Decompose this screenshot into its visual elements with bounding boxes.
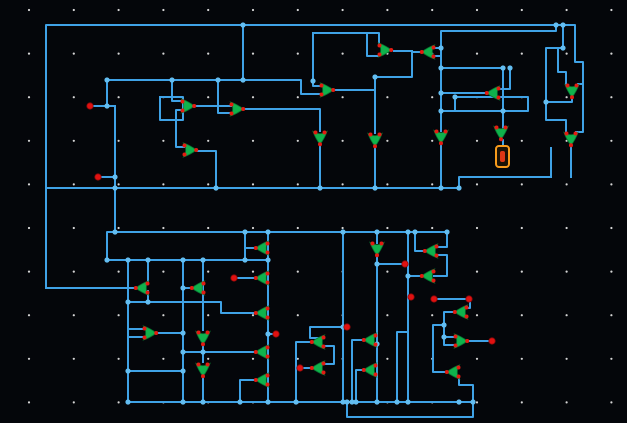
gate-pin[interactable] [435,254,439,258]
wire-junction[interactable] [180,399,185,404]
gate-pin[interactable] [371,242,375,246]
wire-junction[interactable] [507,65,512,70]
wire-junction[interactable] [237,399,242,404]
grid-dot [610,9,612,11]
grid-dot [297,227,299,229]
gate-pin[interactable] [454,344,458,348]
wire-junction[interactable] [200,257,205,262]
grid-dot [386,314,388,316]
gate-pin[interactable] [465,315,469,319]
grid-dot [162,53,164,55]
wire-junction[interactable] [553,22,558,27]
io-terminal[interactable] [297,365,303,371]
gate-pin[interactable] [146,291,150,295]
grid-dot [521,227,523,229]
gate-pin[interactable] [362,338,366,342]
gate-pin[interactable] [504,126,508,130]
circuit-schematic [0,0,627,423]
grid-dot [162,183,164,185]
grid-dot [476,358,478,360]
grid-dot [118,183,120,185]
grid-dot [431,96,433,98]
gate-pin[interactable] [575,84,579,88]
grid-dot [252,9,254,11]
grid-dot [431,314,433,316]
wire-junction[interactable] [441,322,446,327]
gate-pin[interactable] [374,343,378,347]
grid-dot [566,271,568,273]
gate-pin[interactable] [206,363,210,367]
wire-junction[interactable] [500,108,505,113]
grid-dot [431,183,433,185]
gate-pin[interactable] [389,48,393,52]
grid-dot [162,314,164,316]
wire-junction[interactable] [112,174,117,179]
wire-junction[interactable] [242,257,247,262]
grid-dot [207,271,209,273]
wire-junction[interactable] [180,368,185,373]
gate-pin[interactable] [143,327,147,331]
grid-dot [521,53,523,55]
grid-dot [386,96,388,98]
grid-dot [521,401,523,403]
wire-junction[interactable] [438,45,443,50]
wire-junction[interactable] [104,257,109,262]
gate-pin[interactable] [444,130,448,134]
wire-junction[interactable] [374,229,379,234]
gate-pin[interactable] [439,141,443,145]
grid-dot [28,183,30,185]
grid-dot [162,358,164,360]
wire-junction[interactable] [145,257,150,262]
wire-junction[interactable] [125,368,130,373]
io-terminal[interactable] [466,296,472,302]
grid-dot [207,53,209,55]
gate-pin[interactable] [230,112,234,116]
gate-pin[interactable] [569,143,573,147]
gate-pin[interactable] [183,153,187,157]
gate-pin[interactable] [202,291,206,295]
gate-pin[interactable] [266,281,270,285]
wire-junction[interactable] [265,229,270,234]
grid-dot [207,140,209,142]
grid-dot [118,401,120,403]
gate-pin[interactable] [322,345,326,349]
gate-pin[interactable] [266,383,270,387]
grid-dot [610,96,612,98]
wire-junction[interactable] [438,90,443,95]
grid-dot [610,227,612,229]
grid-dot [207,227,209,229]
wire-junction[interactable] [374,261,379,266]
grid-dot [252,358,254,360]
gate-pin[interactable] [362,368,366,372]
gate-pin[interactable] [369,133,373,137]
grid-dot [28,227,30,229]
wire-junction[interactable] [372,185,377,190]
grid-dot [73,96,75,98]
wire-junction[interactable] [543,99,548,104]
gate-pin[interactable] [266,316,270,320]
grid-dot [118,271,120,273]
gate-pin[interactable] [241,107,245,111]
grid-dot [610,271,612,273]
gate-pin[interactable] [318,142,322,146]
grid-dot [73,140,75,142]
wire-junction[interactable] [456,185,461,190]
gate-pin[interactable] [432,270,436,274]
grid-dot [476,9,478,11]
grid-dot [28,271,30,273]
grid-dot [386,183,388,185]
wire-junction[interactable] [169,77,174,82]
grid-dot [386,9,388,11]
grid-dot [118,314,120,316]
grid-dot [118,53,120,55]
wire-junction[interactable] [215,77,220,82]
gate-pin[interactable] [266,346,270,350]
grid-dot [207,183,209,185]
grid-dot [610,183,612,185]
gate-pin[interactable] [254,378,258,382]
wire-junction[interactable] [560,22,565,27]
gate-pin[interactable] [374,373,378,377]
gate-pin[interactable] [146,282,150,286]
wire-junction[interactable] [125,399,130,404]
gate-pin[interactable] [497,87,501,91]
grid-dot [73,358,75,360]
grid-dot [476,401,478,403]
grid-dot [73,9,75,11]
gate-pin[interactable] [266,307,270,311]
gate-pin[interactable] [499,137,503,141]
grid-dot [28,53,30,55]
wire-junction[interactable] [180,349,185,354]
grid-dot [566,314,568,316]
gate-pin[interactable] [323,131,327,135]
grid-dot [476,53,478,55]
grid-dot [28,96,30,98]
gate-pin[interactable] [134,286,138,290]
gate-pin[interactable] [432,279,436,283]
grid-dot [431,140,433,142]
gate-pin[interactable] [432,46,436,50]
io-terminal[interactable] [489,338,495,344]
gate-pin[interactable] [497,96,501,100]
grid-dot [566,53,568,55]
gate-pin[interactable] [266,272,270,276]
gate-pin[interactable] [375,253,379,257]
grid-dot [297,314,299,316]
grid-dot [207,96,209,98]
wire-junction[interactable] [265,399,270,404]
wire-junction[interactable] [372,74,377,79]
wire-junction[interactable] [242,229,247,234]
grid-dot [476,140,478,142]
gate-pin[interactable] [143,336,147,340]
grid-dot [297,183,299,185]
wire-junction[interactable] [125,299,130,304]
gate-pin[interactable] [190,286,194,290]
wire-junction[interactable] [317,185,322,190]
wire-junction[interactable] [310,78,315,83]
wire-junction[interactable] [240,22,245,27]
wire-junction[interactable] [200,349,205,354]
wire-junction[interactable] [405,229,410,234]
wire-junction[interactable] [213,185,218,190]
grid-dot [73,183,75,185]
wire-junction[interactable] [112,185,117,190]
gate-pin[interactable] [192,104,196,108]
gate-pin[interactable] [266,374,270,378]
grid-dot [386,358,388,360]
grid-dot [566,96,568,98]
gate-pin[interactable] [266,251,270,255]
grid-dot [252,271,254,273]
io-terminal[interactable] [273,331,279,337]
gate-pin[interactable] [201,342,205,346]
grid-dot [28,401,30,403]
grid-dot [431,9,433,11]
gate-pin[interactable] [254,246,258,250]
grid-dot [386,140,388,142]
wire-junction[interactable] [444,229,449,234]
wire-junction[interactable] [438,108,443,113]
gate-pin[interactable] [495,126,499,130]
grid-dot [386,271,388,273]
grid-dot [342,227,344,229]
grid-dot [521,183,523,185]
grid-dot [566,401,568,403]
grid-dot [73,314,75,316]
grid-dot [521,271,523,273]
io-terminal[interactable] [431,296,437,302]
wire-junction[interactable] [180,257,185,262]
wire-junction[interactable] [470,399,475,404]
gate-pin[interactable] [465,306,469,310]
io-terminal[interactable] [95,174,101,180]
grid-dot [566,183,568,185]
gate-pin[interactable] [197,363,201,367]
grid-dot [73,271,75,273]
grid-dot [162,271,164,273]
gate-pin[interactable] [453,310,457,314]
grid-dot [610,140,612,142]
gate-pin[interactable] [435,130,439,134]
grid-dot [297,53,299,55]
grid-dot [118,358,120,360]
wire-junction[interactable] [438,185,443,190]
wire-junction[interactable] [180,330,185,335]
gate-pin[interactable] [183,144,187,148]
grid-dot [162,9,164,11]
io-terminal[interactable] [344,324,350,330]
gate-pin[interactable] [230,103,234,107]
grid-dot [297,9,299,11]
gate-pin[interactable] [420,50,424,54]
gate-pin[interactable] [380,242,384,246]
gate-pin[interactable] [322,336,326,340]
grid-dot [252,96,254,98]
gate-pin[interactable] [432,55,436,59]
wire-junction[interactable] [104,77,109,82]
gate-pin[interactable] [378,44,382,48]
grid-dot [297,140,299,142]
wire-junction[interactable] [200,399,205,404]
gate-pin[interactable] [423,249,427,253]
wire-junction[interactable] [240,77,245,82]
gate-pin[interactable] [454,335,458,339]
grid-dot [610,401,612,403]
gate-pin[interactable] [320,93,324,97]
grid-dot [28,314,30,316]
gate-pin[interactable] [445,370,449,374]
grid-dot [118,9,120,11]
gate-pin[interactable] [373,144,377,148]
gate-pin[interactable] [320,84,324,88]
grid-dot [73,401,75,403]
gate-pin[interactable] [322,362,326,366]
wire-junction[interactable] [452,94,457,99]
grid-dot [476,183,478,185]
gate-pin[interactable] [154,331,158,335]
grid-dot [566,358,568,360]
grid-dot [610,314,612,316]
wire-junction[interactable] [560,45,565,50]
wire-junction[interactable] [344,399,349,404]
gate-pin[interactable] [457,366,461,370]
grid-dot [342,183,344,185]
grid-dot [252,183,254,185]
wire-junction[interactable] [340,229,345,234]
grid-dot [521,314,523,316]
grid-dot [342,96,344,98]
gate-pin[interactable] [565,132,569,136]
wire-junction[interactable] [405,273,410,278]
gate-pin[interactable] [457,375,461,379]
gate-pin[interactable] [314,131,318,135]
grid-dot [73,227,75,229]
wire-junction[interactable] [180,285,185,290]
grid-dot [118,140,120,142]
gate-pin[interactable] [374,364,378,368]
grid-dot [252,314,254,316]
wire-junction[interactable] [374,399,379,404]
gate-pin[interactable] [266,242,270,246]
grid-dot [342,53,344,55]
grid-dot [297,271,299,273]
wire-junction[interactable] [265,331,270,336]
gate-pin[interactable] [266,355,270,359]
grid-dot [252,53,254,55]
gate-pin[interactable] [310,340,314,344]
io-terminal[interactable] [402,261,408,267]
wire-junction[interactable] [125,257,130,262]
gate-pin[interactable] [378,53,382,57]
gate-pin[interactable] [201,374,205,378]
grid-dot [28,358,30,360]
grid-dot [297,358,299,360]
wire-junction[interactable] [405,399,410,404]
grid-dot [342,9,344,11]
wire-junction[interactable] [104,103,109,108]
grid-dot [566,227,568,229]
wire-junction[interactable] [353,399,358,404]
gate-pin[interactable] [254,276,258,280]
gate-pin[interactable] [181,109,185,113]
grid-dot [476,227,478,229]
grid-dot [476,314,478,316]
gate-pin[interactable] [194,148,198,152]
grid-dot [386,227,388,229]
wire-junction[interactable] [265,257,270,262]
grid-dot [342,140,344,142]
grid-dot [252,227,254,229]
gate-pin[interactable] [254,311,258,315]
grid-dot [297,96,299,98]
grid-dot [610,53,612,55]
gate-pin[interactable] [206,331,210,335]
wire-junction[interactable] [441,334,446,339]
grid-dot [476,271,478,273]
grid-dot [207,314,209,316]
gate-pin[interactable] [197,331,201,335]
wire-junction[interactable] [145,299,150,304]
grid-dot [521,9,523,11]
gate-pin[interactable] [378,133,382,137]
gate-pin[interactable] [574,132,578,136]
gate-pin[interactable] [310,366,314,370]
schematic-editor-canvas[interactable] [0,0,627,423]
wire-junction[interactable] [293,399,298,404]
grid-dot [521,140,523,142]
gate-pin[interactable] [570,95,574,99]
grid-dot [28,140,30,142]
grid-dot [162,227,164,229]
gate-pin[interactable] [566,84,570,88]
wire-junction[interactable] [412,229,417,234]
grid-dot [207,9,209,11]
gate-pin[interactable] [331,88,335,92]
gate-pin[interactable] [181,100,185,104]
gate-pin[interactable] [254,350,258,354]
wire-junction[interactable] [394,399,399,404]
selected-component-glyph [500,151,505,162]
grid-dot [610,358,612,360]
selected-component[interactable] [496,146,509,167]
wire-junction[interactable] [112,229,117,234]
io-terminal[interactable] [408,294,414,300]
gate-pin[interactable] [465,339,469,343]
wire-junction[interactable] [438,65,443,70]
gate-pin[interactable] [420,274,424,278]
gate-pin[interactable] [485,91,489,95]
grid-dot [73,53,75,55]
gate-pin[interactable] [374,334,378,338]
grid-dot [252,140,254,142]
wire-junction[interactable] [500,65,505,70]
grid-dot [118,96,120,98]
wire-junction[interactable] [456,399,461,404]
gate-pin[interactable] [322,371,326,375]
grid-dot [431,227,433,229]
grid-dot [118,227,120,229]
io-terminal[interactable] [231,275,237,281]
gate-pin[interactable] [202,282,206,286]
io-terminal[interactable] [87,103,93,109]
gate-pin[interactable] [435,245,439,249]
grid-dot [28,9,30,11]
